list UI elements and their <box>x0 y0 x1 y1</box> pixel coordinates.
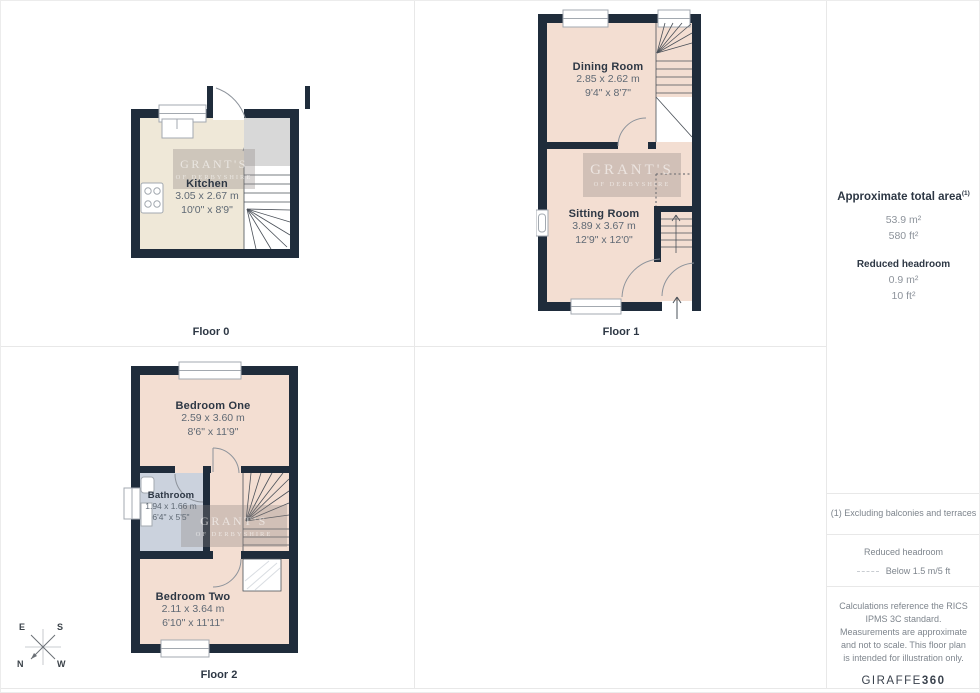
brand-logo: GIRAFFE360 <box>826 675 980 687</box>
compass-south: S <box>57 622 63 632</box>
sitting-room-label: Sitting Room 3.89 x 3.67 m 12'9" x 12'0" <box>534 208 674 247</box>
brand-name: GIRAFFE <box>861 675 921 687</box>
bedroom-two-label: Bedroom Two 2.11 x 3.64 m 6'10" x 11'11" <box>123 591 263 630</box>
bathroom-label: Bathroom 1.94 x 1.66 m 6'4" x 5'5" <box>121 490 221 523</box>
grid-line-vertical-1 <box>414 1 415 688</box>
total-area-ft2: 580 ft² <box>889 228 919 244</box>
dashed-line-icon <box>857 571 879 572</box>
disclaimer-text: Calculations reference the RICS IPMS 3C … <box>826 586 980 665</box>
brand-suffix: 360 <box>922 675 946 687</box>
disclaimer-section: Calculations reference the RICS IPMS 3C … <box>826 586 980 688</box>
reduced-headroom-m2: 0.9 m² <box>889 272 919 288</box>
total-area-m2: 53.9 m² <box>886 212 922 228</box>
floor0-label: Floor 0 <box>161 326 261 338</box>
grid-line-bottom <box>1 688 980 689</box>
total-area-title: Approximate total area(1) <box>837 190 970 203</box>
footnote-section: (1) Excluding balconies and terraces <box>826 493 980 534</box>
compass-north: N <box>17 659 24 669</box>
compass-icon: E S N W <box>11 615 75 679</box>
legend-section: Reduced headroom Below 1.5 m/5 ft <box>826 534 980 586</box>
floorplan-page: GRANT'S OF DERBYSHIRE Kitchen 3.05 x 2.6… <box>0 0 980 693</box>
bedroom-one-label: Bedroom One 2.59 x 3.60 m 8'6" x 11'9" <box>143 400 283 439</box>
compass-east: E <box>19 622 25 632</box>
reduced-headroom-ft2: 10 ft² <box>892 288 916 304</box>
compass-west: W <box>57 659 66 669</box>
total-area-panel: Approximate total area(1) 53.9 m² 580 ft… <box>826 1 980 493</box>
watermark-floor1: GRANT'S OF DERBYSHIRE <box>583 153 681 197</box>
watermark-line2: OF DERBYSHIRE <box>196 531 273 538</box>
legend-row: Below 1.5 m/5 ft <box>826 565 980 578</box>
kitchen-label: Kitchen 3.05 x 2.67 m 10'0" x 8'9" <box>137 178 277 217</box>
grid-line-horizontal-1 <box>1 346 826 347</box>
watermark-line1: GRANT'S <box>590 162 674 179</box>
legend-value: Below 1.5 m/5 ft <box>886 565 951 578</box>
watermark-line1: GRANT'S <box>180 157 248 172</box>
reduced-headroom-title: Reduced headroom <box>857 259 950 270</box>
footnote-marker: (1) <box>962 190 970 197</box>
info-sidebar: Approximate total area(1) 53.9 m² 580 ft… <box>826 1 980 688</box>
floor1-label: Floor 1 <box>571 326 671 338</box>
legend-title: Reduced headroom <box>826 546 980 559</box>
watermark-line2: OF DERBYSHIRE <box>594 181 671 188</box>
floor2-label: Floor 2 <box>169 669 269 681</box>
footnote-text: (1) Excluding balconies and terraces <box>826 507 980 520</box>
dining-room-label: Dining Room 2.85 x 2.62 m 9'4" x 8'7" <box>538 61 678 100</box>
